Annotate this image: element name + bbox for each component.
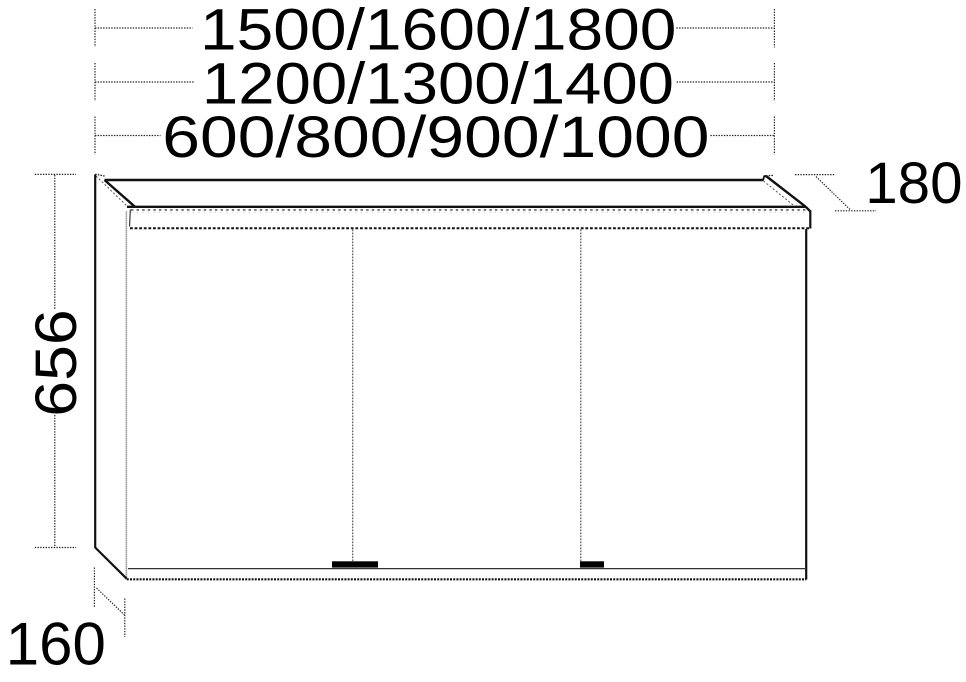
svg-text:600/800/900/1000: 600/800/900/1000 [162, 105, 709, 169]
svg-text:180: 180 [865, 151, 962, 216]
svg-text:160: 160 [6, 611, 106, 678]
svg-text:656: 656 [24, 309, 88, 417]
